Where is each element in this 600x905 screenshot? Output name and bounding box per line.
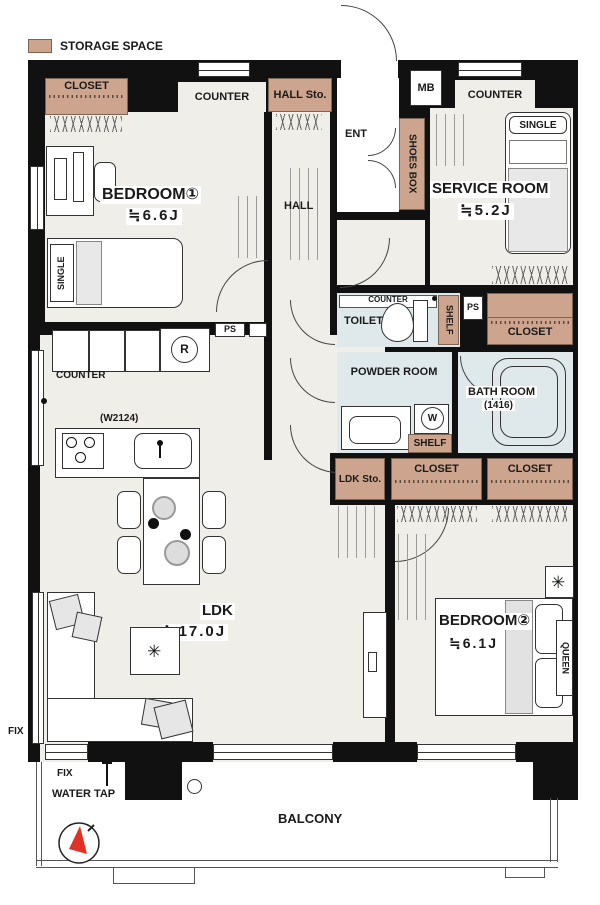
balcony-wall-bottom	[36, 860, 558, 868]
shading-bedroom1	[238, 196, 264, 258]
desk-item-1	[54, 158, 67, 200]
dining-table	[143, 478, 200, 585]
bed-service-blanket	[509, 140, 567, 164]
bed-bedroom1-pillow	[76, 241, 102, 305]
pipe-space-1: PS	[215, 323, 245, 337]
shading-hall	[290, 168, 326, 260]
cup-2	[180, 529, 191, 540]
closet-service-hangers	[491, 321, 569, 324]
counter-service: COUNTER	[455, 80, 535, 110]
compass-icon	[56, 820, 102, 866]
window-left-ldk	[31, 350, 44, 466]
cup-1	[148, 518, 159, 529]
wall-hall-ldk	[264, 322, 272, 460]
water-tap-leader	[106, 764, 108, 786]
refrigerator-label: R	[171, 336, 198, 363]
sliding-panel-handle	[368, 652, 377, 672]
closet-service-divider	[488, 317, 572, 318]
counter-ldk-label: COUNTER	[56, 370, 105, 381]
service-room-name: SERVICE ROOM	[430, 181, 550, 198]
bedroom2-name: BEDROOM②	[437, 613, 532, 630]
meter-box: MB	[410, 70, 442, 106]
bedroom1-name: BEDROOM①	[100, 186, 201, 204]
shelf-toilet: SHELF	[438, 295, 459, 345]
toilet-bowl	[381, 303, 414, 342]
wall-bottom-corner	[533, 742, 578, 800]
balcony-wall-left	[36, 762, 42, 866]
powder-room-label: POWDER ROOM	[340, 366, 448, 378]
balcony-step-right	[505, 868, 545, 878]
balcony-step-left	[113, 868, 195, 884]
powder-sink-basin	[349, 416, 401, 444]
pipe-space-2: PS	[463, 296, 483, 320]
ldk-name: LDK	[200, 603, 235, 620]
closet-bedroom1-door-hatch	[50, 116, 122, 132]
shelf-powder: SHELF	[408, 434, 452, 453]
washer-label: W	[421, 407, 444, 430]
shoes-box: SHOES BOX	[399, 118, 425, 210]
dining-chair-4	[202, 536, 226, 574]
window-ldk-balcony	[213, 744, 333, 760]
place-setting-2	[164, 540, 190, 566]
fix-window-left	[32, 592, 44, 744]
entrance-label: ENT	[345, 128, 367, 140]
toilet-label: TOILET	[344, 315, 383, 327]
shading-ldk-storage	[338, 506, 382, 558]
stove-burner-1	[66, 437, 77, 448]
bath-room-name: BATH ROOM	[466, 386, 537, 398]
closet-bedroom2-right-hangers	[491, 480, 569, 483]
kitchen-width-label: (W2124)	[100, 413, 138, 424]
dining-chair-1	[117, 491, 141, 529]
legend-swatch	[28, 39, 52, 53]
shading-service	[436, 114, 466, 166]
legend-label: STORAGE SPACE	[60, 40, 163, 53]
closet-bedroom2-left-hangers	[395, 480, 478, 483]
closet-bedroom2-left-label: CLOSET	[391, 463, 482, 475]
closet-bedroom1-hangers	[49, 95, 124, 98]
ldk-counter-cabinet	[52, 330, 160, 372]
dining-chair-3	[202, 491, 226, 529]
closet-bedroom2-right-label: CLOSET	[487, 463, 573, 475]
cabinet-divider-2	[124, 330, 126, 372]
closet-service-door-hatch	[492, 266, 570, 284]
water-tap-symbol	[102, 754, 112, 764]
stove-burner-2	[84, 437, 95, 448]
entrance-opening	[341, 60, 398, 79]
balcony-wall-right	[550, 798, 558, 862]
hall-floor	[272, 95, 330, 460]
wall-bottom-2	[333, 742, 417, 762]
bedroom2-size: ≒6.1J	[447, 636, 500, 651]
hall-storage-door-hatch	[276, 114, 322, 130]
stove-burner-3	[75, 452, 86, 463]
entrance-door-arc	[341, 5, 397, 61]
hall-label: HALL	[284, 200, 313, 212]
balcony-label: BALCONY	[278, 812, 342, 826]
window-top-service	[458, 62, 522, 77]
sink-faucet-stem	[159, 444, 161, 458]
pipe-space-1b	[249, 323, 267, 337]
closet-bedroom1-label: CLOSET	[45, 80, 128, 92]
counter-bedroom1: COUNTER	[178, 82, 266, 112]
service-room-size: ≒5.2J	[458, 203, 514, 220]
wall-bottom-tab	[125, 760, 182, 800]
closet-service-label: CLOSET	[487, 326, 573, 338]
bed-bedroom1-size-label: SINGLE	[50, 244, 74, 302]
window-bottom-left	[45, 744, 88, 760]
plant-icon-bedroom2: ✳	[551, 574, 565, 591]
window-bedroom2-balcony	[417, 744, 516, 760]
bed-bedroom2-size-label: QUEEN	[556, 620, 573, 696]
counter-leader-dot	[41, 398, 47, 404]
desk-item-2	[73, 152, 84, 202]
bath-room-size: (1416)	[482, 400, 515, 411]
water-tap-label: WATER TAP	[52, 788, 115, 800]
window-left-bedroom1	[30, 166, 44, 230]
fix-label-left: FIX	[8, 726, 24, 737]
balcony-drain	[187, 779, 202, 794]
window-top-bedroom1	[198, 62, 250, 77]
wall-below-storage-row	[330, 500, 573, 505]
sofa-cushion-2	[72, 612, 103, 643]
place-setting-1	[152, 496, 176, 520]
bed-service-size-label: SINGLE	[509, 116, 567, 134]
cabinet-divider-1	[88, 330, 90, 372]
fix-label-bottom: FIX	[57, 768, 73, 779]
closet-bedroom2-right-door-hatch	[492, 506, 567, 522]
floor-plan: STORAGE SPACE CLOSET COUNTER SINGLE BEDR…	[0, 0, 600, 905]
dining-chair-2	[117, 536, 141, 574]
plant-icon-ldk: ✳	[147, 643, 161, 660]
shading-bedroom2	[398, 534, 432, 620]
kitchen-sink	[134, 433, 192, 469]
toilet-tank	[413, 300, 428, 342]
toilet-counter-dot	[432, 296, 437, 301]
bedroom1-size: ≒6.6J	[126, 208, 182, 225]
ldk-storage: LDK Sto.	[335, 458, 385, 500]
hall-storage: HALL Sto.	[268, 78, 332, 112]
